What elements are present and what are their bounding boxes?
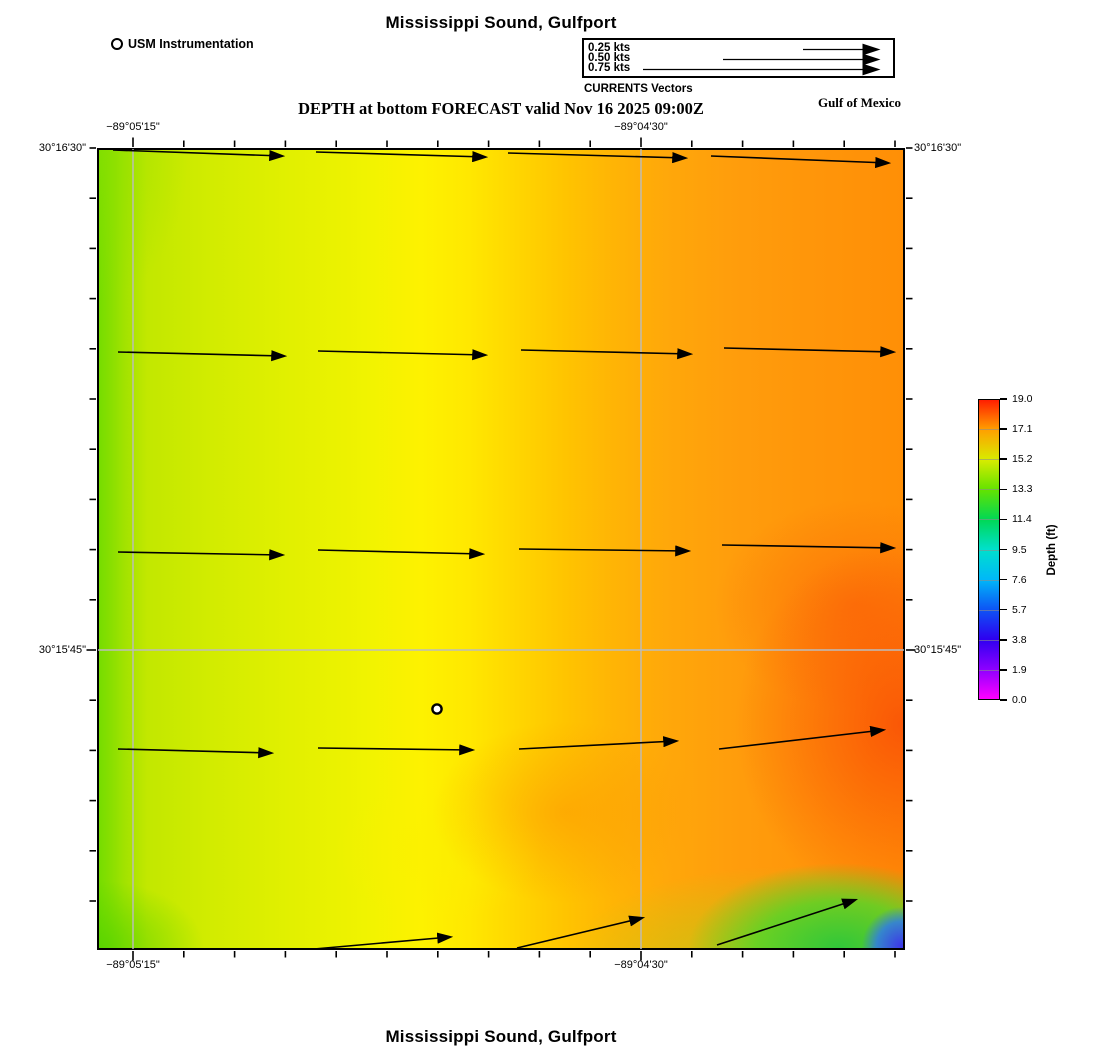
colorbar-tick bbox=[1000, 428, 1007, 430]
station-marker-icon bbox=[111, 38, 123, 50]
colorbar-tick bbox=[1000, 699, 1007, 701]
colorbar-tick-label: 9.5 bbox=[1012, 544, 1027, 556]
colorbar-divider bbox=[979, 610, 999, 611]
longitude-tick-label: −89°04'30" bbox=[581, 121, 701, 133]
colorbar-tick-label: 11.4 bbox=[1012, 513, 1032, 525]
depth-heatmap bbox=[99, 150, 903, 948]
colorbar-tick-label: 13.3 bbox=[1012, 483, 1032, 495]
colorbar-tick bbox=[1000, 639, 1007, 641]
depth-colorbar bbox=[978, 399, 1000, 700]
station-legend: USM Instrumentation bbox=[111, 37, 254, 51]
colorbar-tick bbox=[1000, 398, 1007, 400]
region-label: Gulf of Mexico bbox=[695, 95, 901, 111]
latitude-tick-label: 30°15'45" bbox=[914, 644, 961, 656]
colorbar-divider bbox=[979, 429, 999, 430]
colorbar-tick bbox=[1000, 519, 1007, 521]
colorbar-title: Depth (ft) bbox=[1046, 524, 1058, 575]
map-frame bbox=[97, 148, 905, 950]
colorbar-divider bbox=[979, 550, 999, 551]
colorbar-tick bbox=[1000, 489, 1007, 491]
latitude-tick-label: 30°16'30" bbox=[6, 142, 86, 154]
page-title: Mississippi Sound, Gulfport bbox=[97, 13, 905, 33]
latitude-tick-label: 30°16'30" bbox=[914, 142, 961, 154]
colorbar-tick-label: 15.2 bbox=[1012, 453, 1032, 465]
colorbar-divider bbox=[979, 459, 999, 460]
colorbar-tick bbox=[1000, 609, 1007, 611]
colorbar-divider bbox=[979, 489, 999, 490]
colorbar-tick-label: 5.7 bbox=[1012, 604, 1027, 616]
longitude-tick-label: −89°04'30" bbox=[581, 959, 701, 971]
station-legend-label: USM Instrumentation bbox=[128, 37, 254, 51]
colorbar-divider bbox=[979, 670, 999, 671]
colorbar-tick-label: 7.6 bbox=[1012, 574, 1027, 586]
colorbar-tick-label: 1.9 bbox=[1012, 664, 1027, 676]
colorbar-divider bbox=[979, 580, 999, 581]
colorbar-divider bbox=[979, 640, 999, 641]
colorbar-tick bbox=[1000, 579, 1007, 581]
footer-title: Mississippi Sound, Gulfport bbox=[97, 1027, 905, 1047]
forecast-plot-page: Mississippi Sound, Gulfport USM Instrume… bbox=[0, 0, 1100, 1050]
longitude-tick-label: −89°05'15" bbox=[73, 959, 193, 971]
colorbar-tick-label: 3.8 bbox=[1012, 634, 1027, 646]
currents-legend-caption: CURRENTS Vectors bbox=[584, 83, 693, 95]
colorbar-tick-label: 19.0 bbox=[1012, 393, 1032, 405]
longitude-tick-label: −89°05'15" bbox=[73, 121, 193, 133]
colorbar-tick-label: 17.1 bbox=[1012, 423, 1032, 435]
legend-arrows bbox=[584, 40, 893, 76]
currents-vector-legend: 0.25 kts0.50 kts0.75 kts bbox=[582, 38, 895, 78]
colorbar-tick bbox=[1000, 458, 1007, 460]
colorbar-tick bbox=[1000, 669, 1007, 671]
colorbar-tick bbox=[1000, 549, 1007, 551]
colorbar-tick-label: 0.0 bbox=[1012, 694, 1027, 706]
colorbar-divider bbox=[979, 519, 999, 520]
latitude-tick-label: 30°15'45" bbox=[6, 644, 86, 656]
